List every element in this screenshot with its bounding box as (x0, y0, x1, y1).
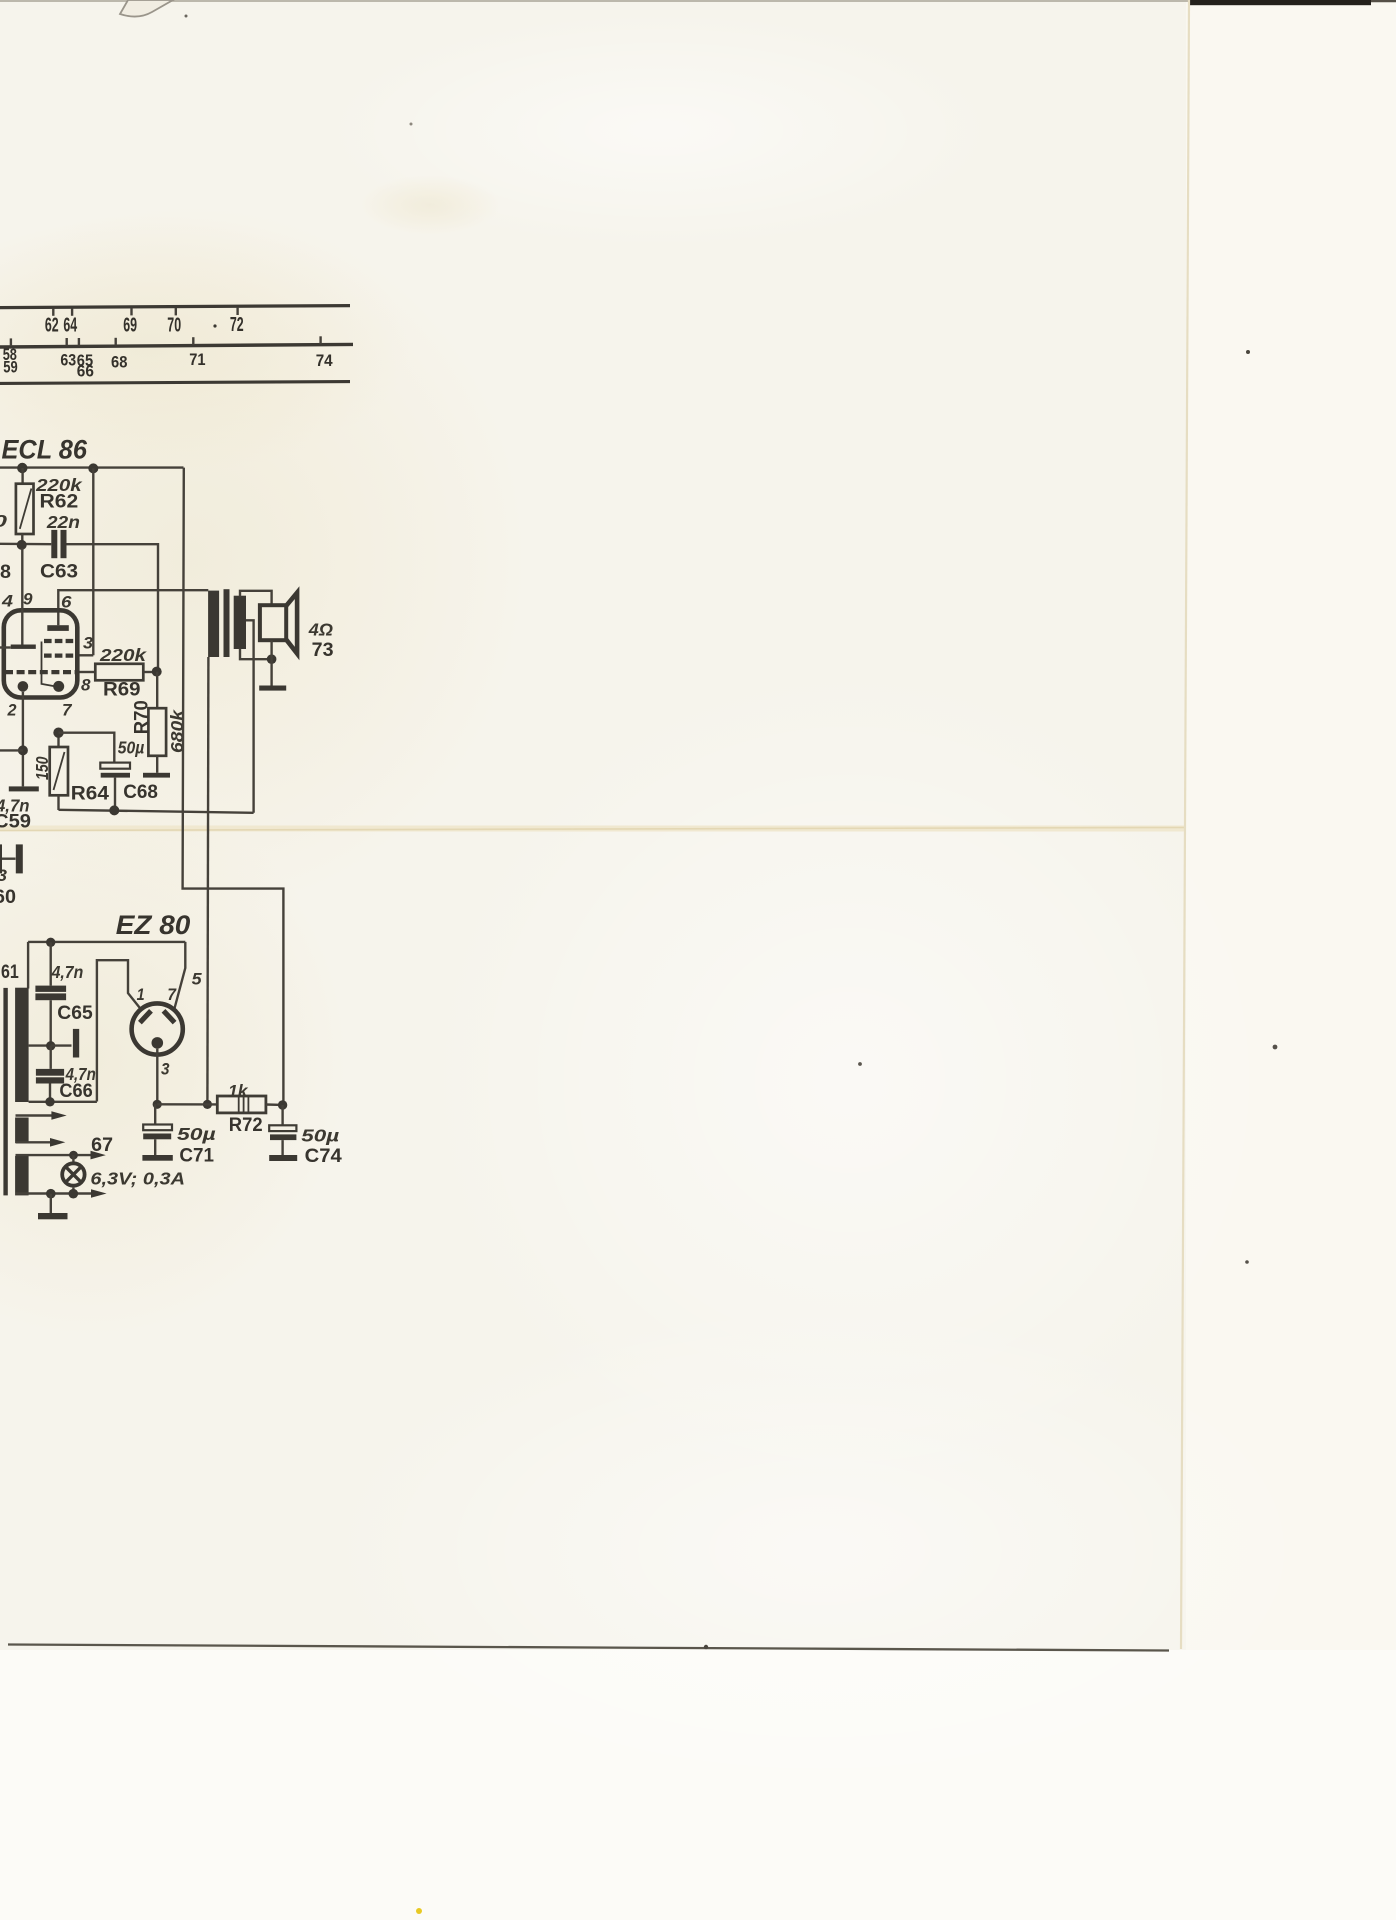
svg-text:8: 8 (81, 676, 91, 695)
svg-text:2: 2 (7, 701, 17, 720)
svg-text:64: 64 (63, 315, 77, 337)
svg-text:150: 150 (32, 756, 52, 780)
svg-text:7: 7 (62, 701, 73, 720)
svg-text:C63: C63 (40, 561, 78, 582)
svg-text:62: 62 (45, 315, 59, 337)
svg-text:61: 61 (1, 962, 19, 983)
svg-text:4Ω: 4Ω (308, 620, 333, 640)
svg-text:59: 59 (3, 357, 17, 376)
svg-text:72: 72 (230, 314, 244, 336)
svg-text:50µ: 50µ (301, 1126, 339, 1146)
svg-text:R69: R69 (103, 680, 141, 701)
svg-text:74: 74 (316, 351, 333, 370)
svg-text:1: 1 (137, 985, 145, 1004)
svg-text:73: 73 (312, 640, 334, 661)
svg-text:0: 0 (0, 511, 7, 531)
svg-text:1k: 1k (228, 1081, 249, 1101)
svg-text:68: 68 (111, 353, 127, 372)
svg-text:4,7n: 4,7n (51, 962, 84, 982)
svg-text:69: 69 (123, 314, 137, 336)
svg-text:R70: R70 (131, 700, 152, 734)
svg-text:71: 71 (189, 350, 205, 369)
svg-text:5: 5 (192, 970, 203, 989)
svg-text:220k: 220k (99, 645, 148, 665)
svg-text:6,3V; 0,3A: 6,3V; 0,3A (90, 1168, 185, 1188)
svg-text:C68: C68 (123, 782, 158, 803)
svg-text:66: 66 (77, 362, 94, 381)
svg-text:70: 70 (167, 314, 181, 336)
svg-text:R62: R62 (40, 492, 79, 513)
svg-text:67: 67 (91, 1135, 113, 1156)
svg-text:4: 4 (1, 592, 14, 611)
svg-text:63: 63 (60, 351, 76, 370)
svg-text:C71: C71 (179, 1145, 214, 1166)
svg-text:6: 6 (61, 593, 72, 612)
svg-text:8: 8 (0, 562, 11, 583)
svg-text:R72: R72 (229, 1115, 263, 1136)
svg-text:3: 3 (83, 634, 94, 653)
svg-text:50µ: 50µ (118, 738, 145, 758)
svg-text:9: 9 (23, 590, 33, 609)
svg-text:C59: C59 (0, 811, 31, 832)
svg-text:7: 7 (167, 985, 177, 1004)
svg-text:EZ 80: EZ 80 (116, 910, 191, 940)
svg-text:C66: C66 (59, 1081, 92, 1102)
svg-text:C74: C74 (305, 1146, 343, 1167)
svg-text:60: 60 (0, 887, 16, 908)
svg-text:ECL 86: ECL 86 (2, 435, 88, 465)
svg-text:50µ: 50µ (177, 1124, 216, 1144)
svg-text:3: 3 (161, 1060, 170, 1079)
svg-text:22n: 22n (46, 512, 80, 532)
svg-text:R64: R64 (71, 783, 110, 804)
svg-text:C65: C65 (57, 1003, 93, 1024)
svg-text:3: 3 (0, 866, 8, 885)
